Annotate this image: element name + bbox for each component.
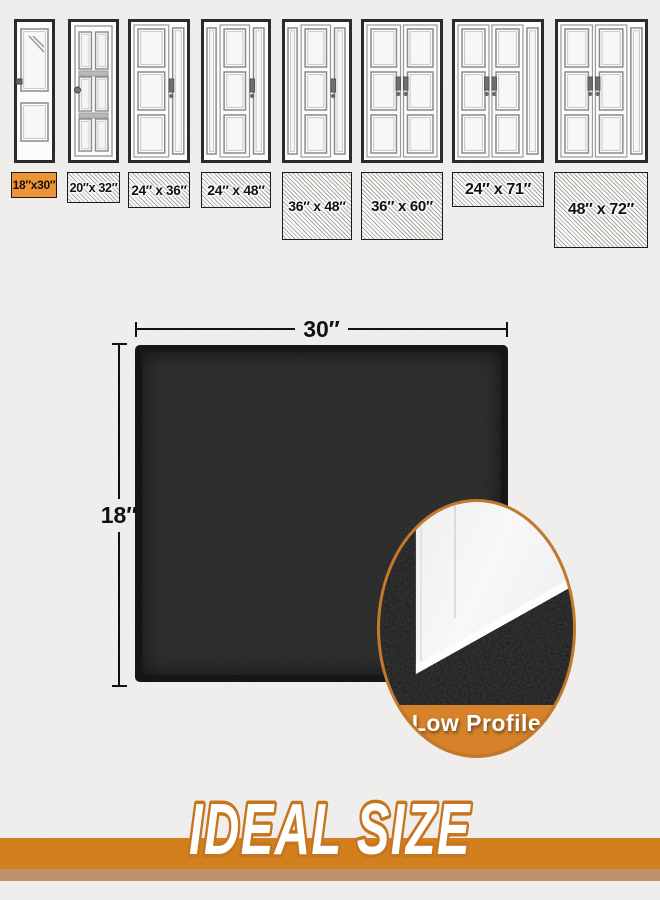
panel-door-two-sidelights-icon (201, 19, 271, 163)
dimension-line (118, 532, 120, 686)
ideal-size-banner: IDEAL SIZE (0, 788, 660, 868)
size-label: 20″x 32″ (67, 172, 120, 203)
double-door-right-sidelight-icon (555, 19, 648, 163)
size-label-selected: 18″x30″ (11, 172, 57, 198)
dimension-tick (506, 322, 508, 337)
banner-title: IDEAL SIZE (189, 790, 471, 868)
double-panel-door-icon (361, 19, 443, 163)
six-pane-door-icon (68, 19, 119, 163)
size-label-text: 24″ x 36″ (131, 183, 186, 198)
door-groove (454, 499, 456, 618)
inset-caption: Low Profile (412, 710, 541, 737)
size-label-text: 24″ x 48″ (207, 182, 264, 198)
dimension-line (137, 328, 295, 330)
door-size-option-1: 18″x30″ (11, 19, 57, 198)
door-groove (420, 499, 422, 668)
double-door-right-sidelight-icon (452, 19, 544, 163)
size-label-text: 36″ x 48″ (288, 198, 345, 214)
size-label-text: 18″x30″ (13, 178, 56, 192)
dimension-line (348, 328, 506, 330)
door-size-option-2: 20″x 32″ (67, 19, 120, 203)
size-label-text: 24″ x 71″ (465, 181, 531, 199)
single-pane-door-icon (14, 19, 55, 163)
panel-door-two-sidelights-icon (282, 19, 352, 163)
size-label: 48″ x 72″ (554, 172, 648, 248)
door-size-option-6: 36″ x 60″ (361, 19, 443, 240)
door-size-option-3: 24″ x 36″ (128, 19, 190, 208)
panel-door-right-sidelight-icon (128, 19, 190, 163)
size-label: 36″ x 48″ (282, 172, 352, 240)
width-value: 30″ (295, 318, 348, 341)
width-dimension: 30″ (135, 321, 508, 337)
size-label-text: 36″ x 60″ (371, 198, 433, 215)
door-size-option-4: 24″ x 48″ (201, 19, 271, 208)
product-size-infographic: { "doors": [ {"icon": "single-pane-door-… (0, 0, 660, 900)
door-size-option-8: 48″ x 72″ (554, 19, 648, 248)
height-dimension: 18″ (103, 343, 135, 687)
dimension-tick (112, 685, 127, 687)
banner-shadow-strip (0, 869, 660, 881)
door-size-option-7: 24″ x 71″ (452, 19, 544, 207)
size-label: 24″ x 71″ (452, 172, 544, 207)
door-size-options-row: 18″x30″20″x 32″24″ x 36″24″ x 48″36″ x 4… (0, 0, 660, 260)
dimension-line (118, 345, 120, 499)
inset-caption-band: Low Profile (377, 705, 576, 758)
height-value: 18″ (101, 499, 138, 532)
size-label-text: 48″ x 72″ (568, 201, 634, 219)
size-label: 24″ x 48″ (201, 172, 271, 208)
size-label-text: 20″x 32″ (70, 181, 118, 195)
door-size-option-5: 36″ x 48″ (282, 19, 352, 240)
size-label: 24″ x 36″ (128, 172, 190, 208)
low-profile-inset: Low Profile (377, 499, 576, 758)
size-label: 36″ x 60″ (361, 172, 443, 240)
